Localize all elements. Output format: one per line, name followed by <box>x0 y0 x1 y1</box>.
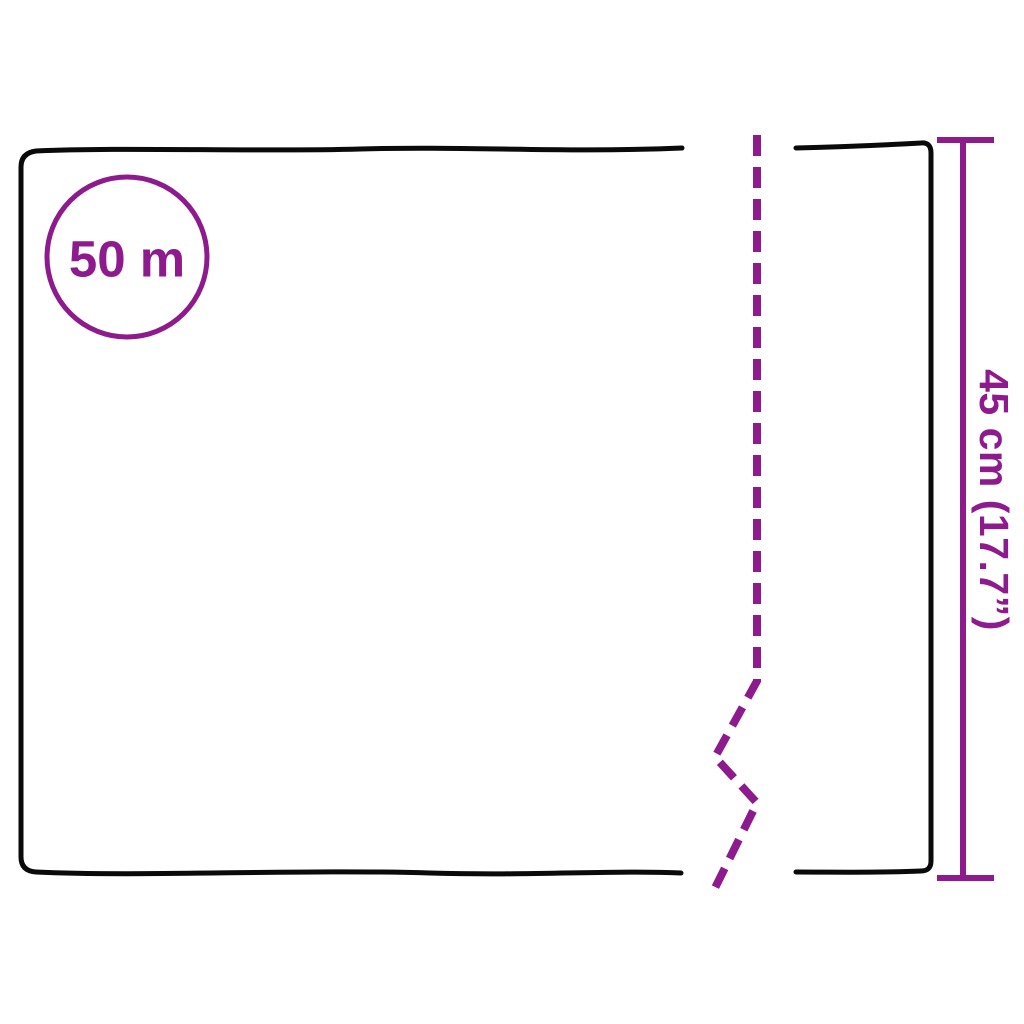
height-dimension-label: 45 cm (17.7”) <box>971 369 1017 631</box>
fold-break-dashed-line <box>715 135 757 888</box>
sheet-outline-right-section <box>796 143 931 872</box>
dimension-diagram-svg: 50 m 45 cm (17.7”) <box>0 0 1024 1024</box>
roll-length-label: 50 m <box>69 231 185 288</box>
product-dimension-diagram: 50 m 45 cm (17.7”) <box>0 0 1024 1024</box>
